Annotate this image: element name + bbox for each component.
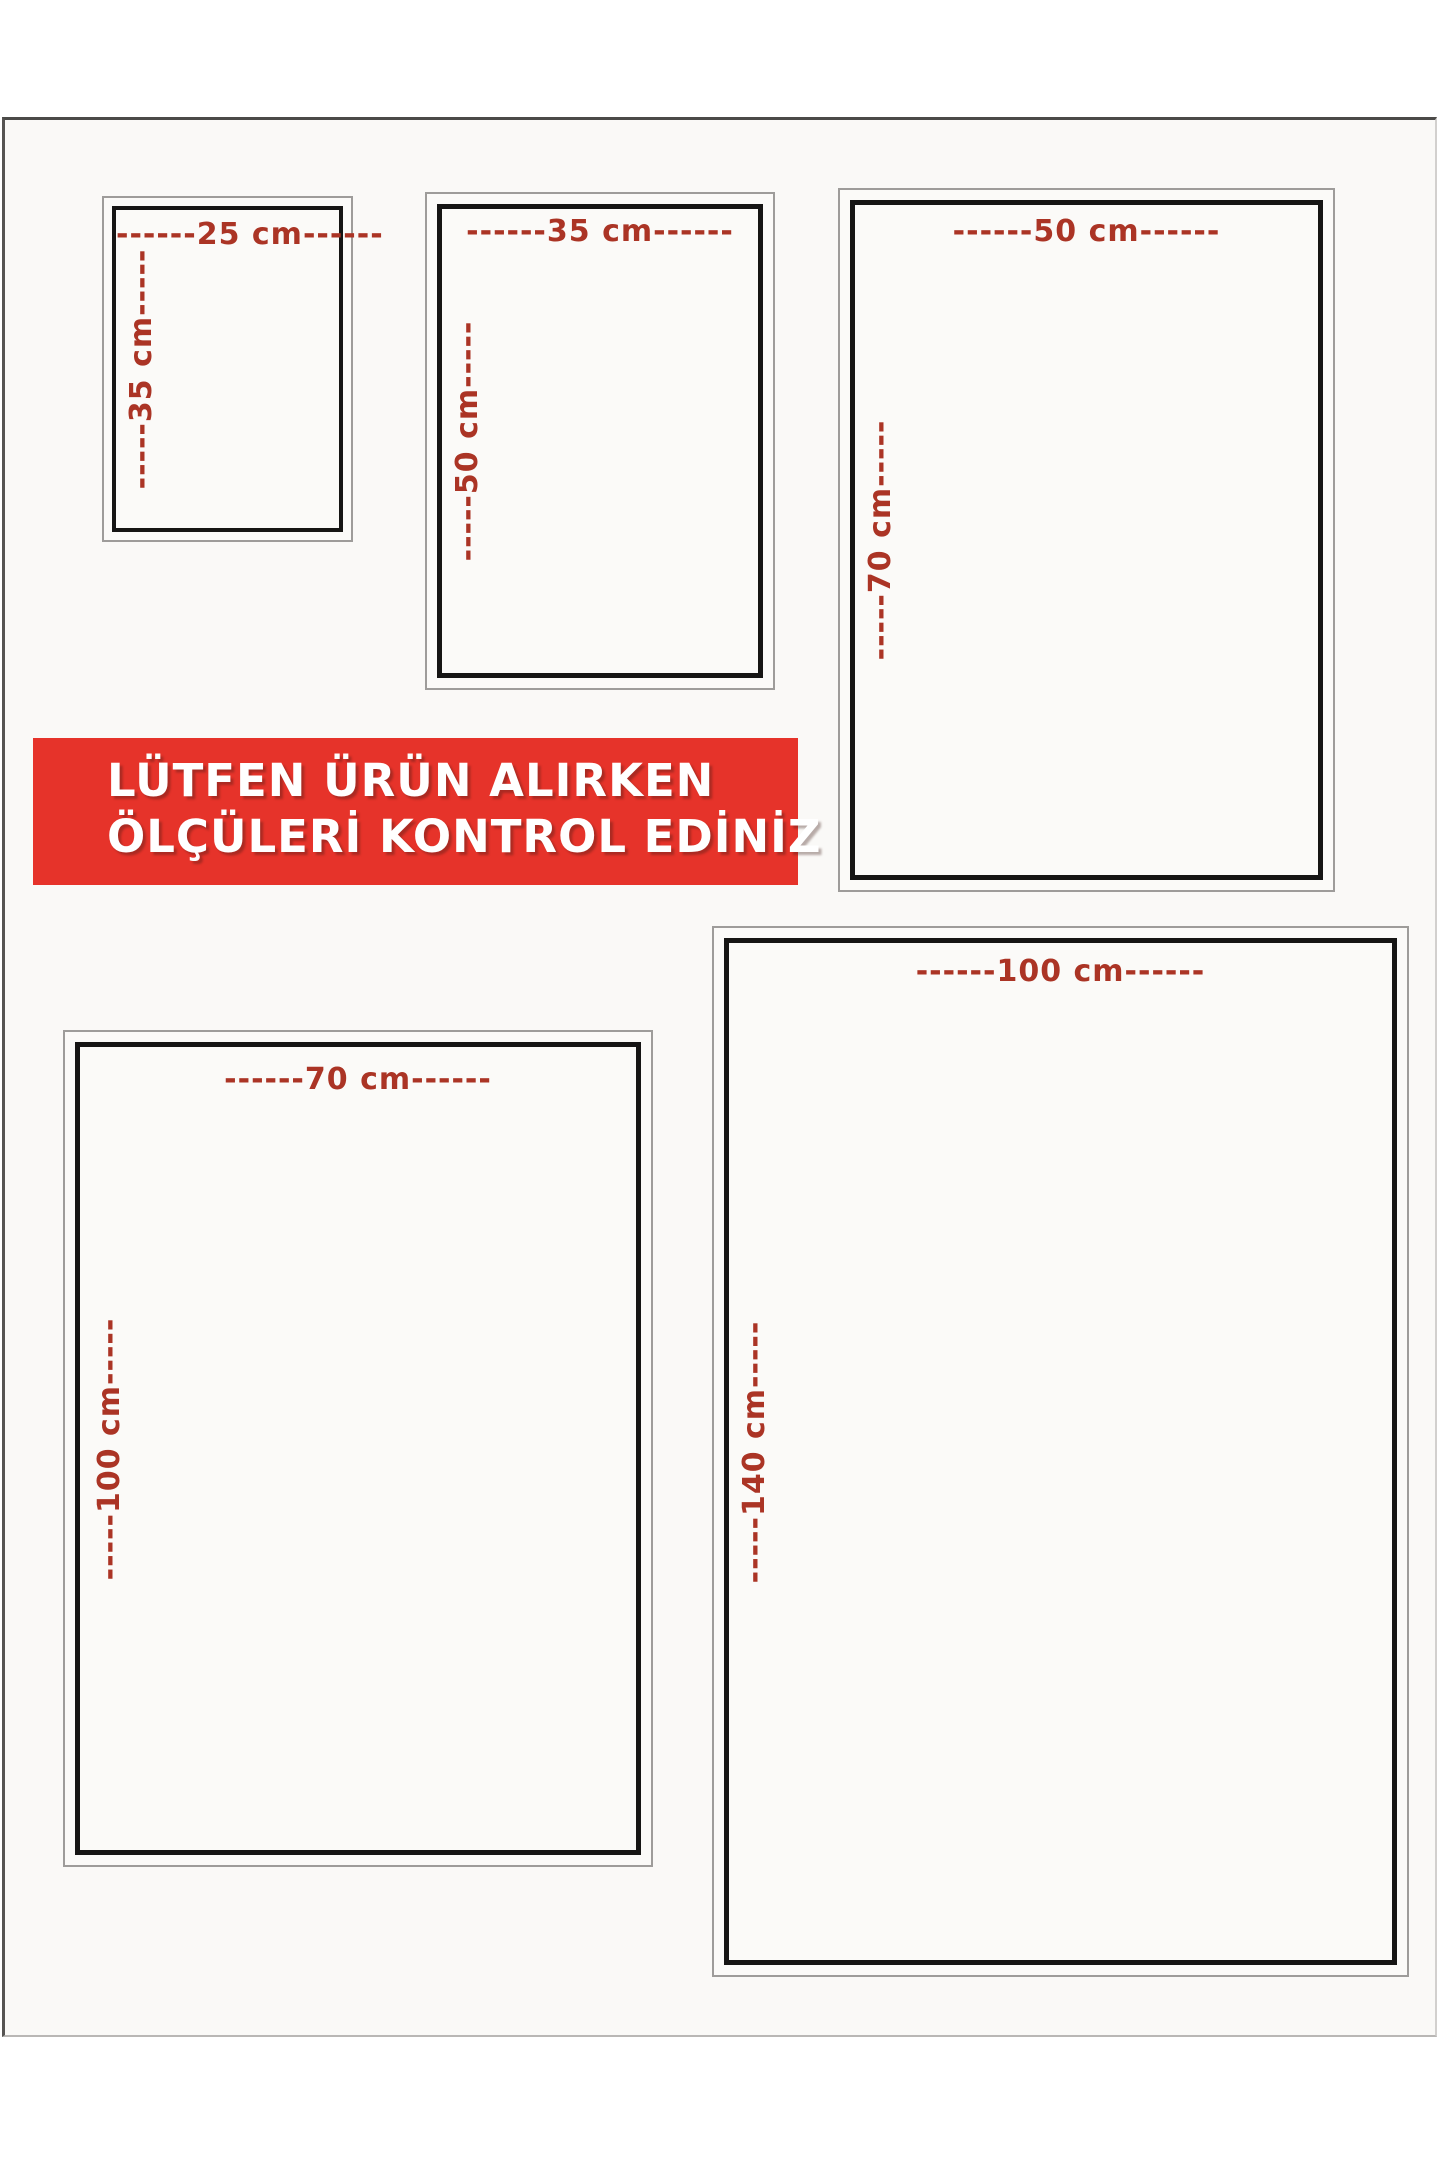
size-box-25x35: ------25 cm------ -----35 cm----- <box>102 196 353 542</box>
height-dimension-label: -----50 cm----- <box>453 321 483 562</box>
size-box-70x100-frame: ------70 cm------ -----100 cm----- <box>75 1042 641 1855</box>
size-box-50x70-frame: ------50 cm------ -----70 cm----- <box>850 200 1323 880</box>
size-box-100x140: ------100 cm------ -----140 cm----- <box>712 926 1409 1977</box>
width-dimension-label: ------25 cm------ <box>116 210 339 250</box>
warning-banner-line-1: LÜTFEN ÜRÜN ALIRKEN <box>107 753 798 809</box>
height-dimension-label: -----35 cm----- <box>127 249 157 490</box>
size-box-35x50-frame: ------35 cm------ -----50 cm----- <box>437 204 763 678</box>
height-dimension-label: -----140 cm----- <box>740 1320 770 1583</box>
size-box-25x35-frame: ------25 cm------ -----35 cm----- <box>112 206 343 532</box>
size-box-100x140-frame: ------100 cm------ -----140 cm----- <box>724 938 1397 1965</box>
size-box-70x100: ------70 cm------ -----100 cm----- <box>63 1030 653 1867</box>
width-dimension-label: ------100 cm------ <box>729 943 1392 987</box>
warning-banner-line-2: ÖLÇÜLERİ KONTROL EDİNİZ <box>107 809 798 865</box>
height-dimension-label: -----100 cm----- <box>95 1317 125 1580</box>
width-dimension-label: ------35 cm------ <box>442 209 758 247</box>
width-dimension-label: ------50 cm------ <box>855 205 1318 247</box>
size-guide-page: ------25 cm------ -----35 cm----- ------… <box>0 0 1440 2160</box>
width-dimension-label: ------70 cm------ <box>80 1047 636 1095</box>
warning-banner: LÜTFEN ÜRÜN ALIRKEN ÖLÇÜLERİ KONTROL EDİ… <box>33 738 798 885</box>
height-dimension-label: -----70 cm----- <box>866 420 896 661</box>
size-box-50x70: ------50 cm------ -----70 cm----- <box>838 188 1335 892</box>
size-box-35x50: ------35 cm------ -----50 cm----- <box>425 192 775 690</box>
